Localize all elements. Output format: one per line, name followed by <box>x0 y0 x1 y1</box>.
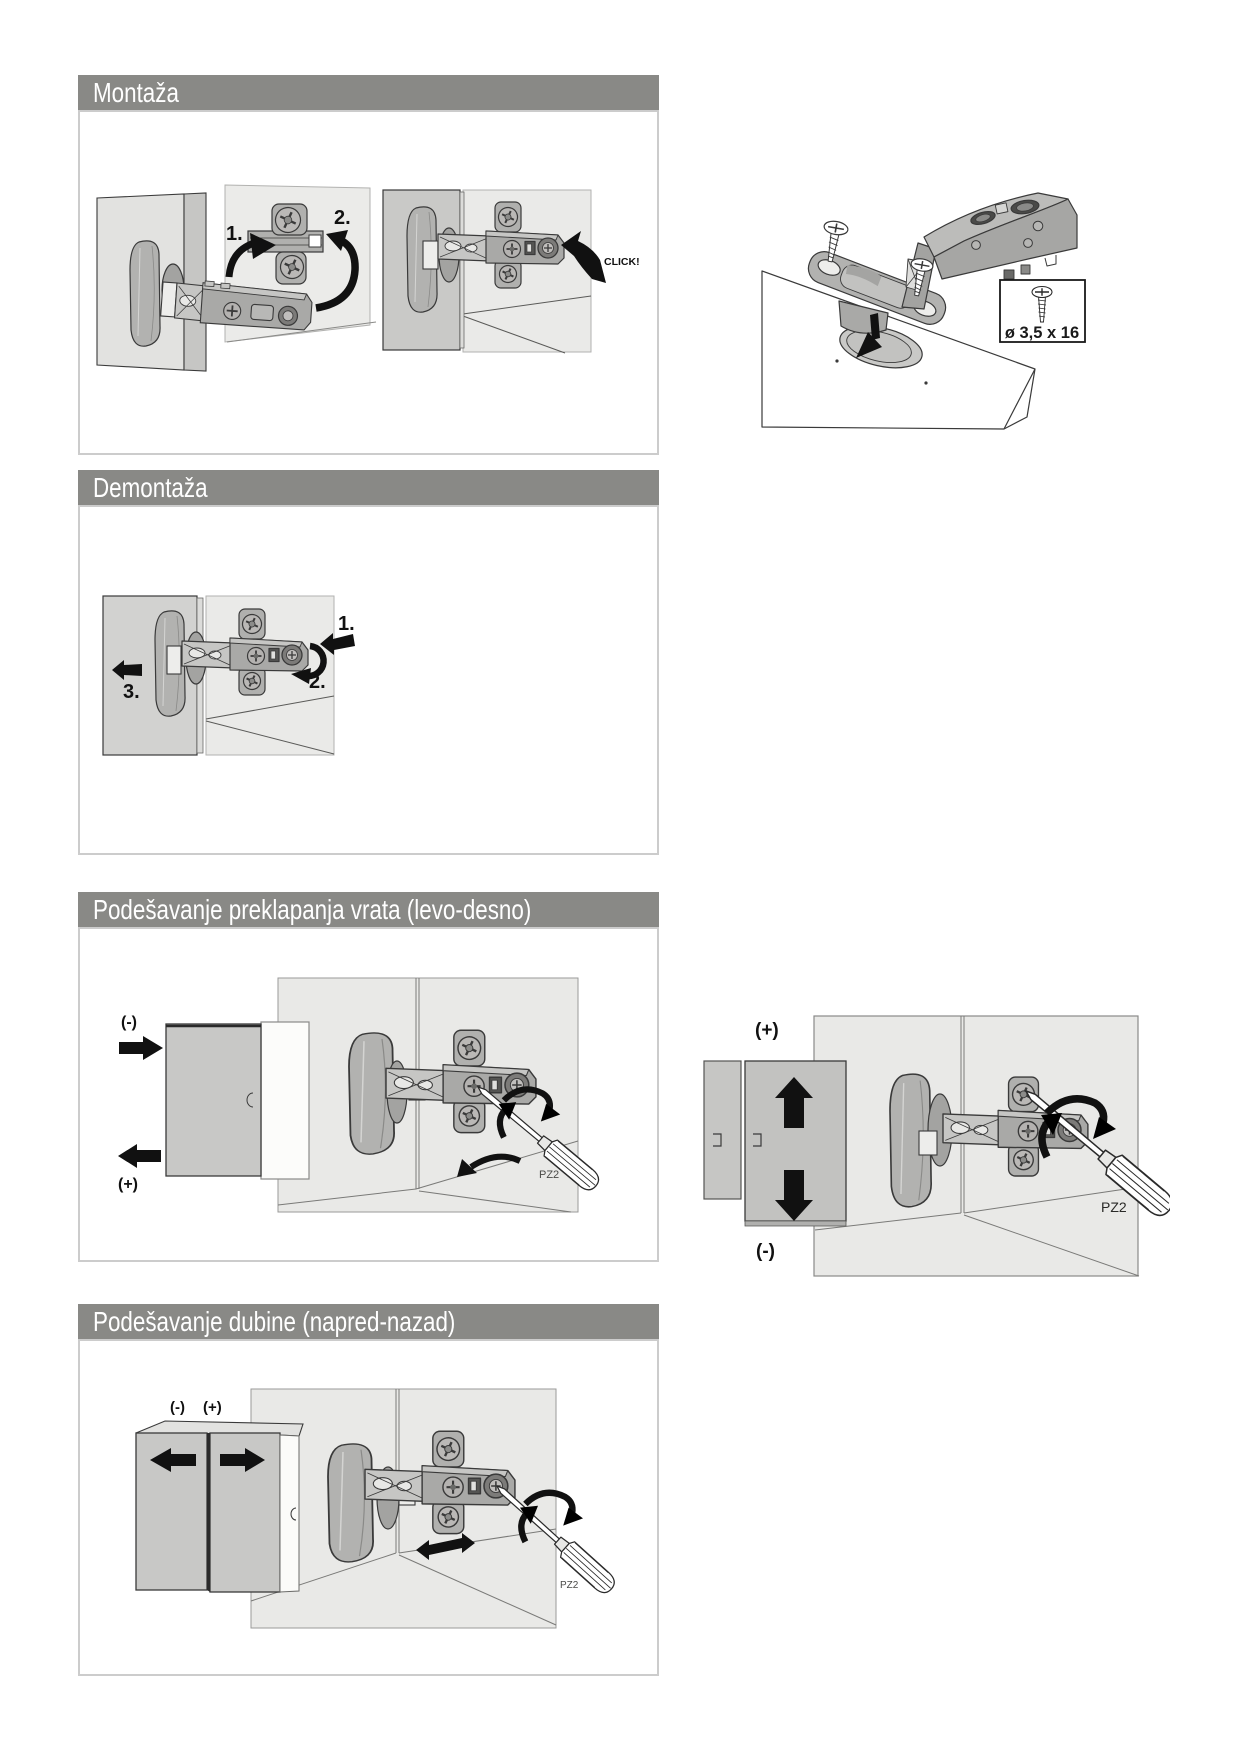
svg-text:1.: 1. <box>338 613 355 635</box>
svg-text:(-): (-) <box>756 1241 775 1262</box>
svg-text:(+): (+) <box>203 1399 222 1416</box>
svg-text:(+): (+) <box>118 1176 138 1193</box>
svg-text:(-): (-) <box>121 1014 137 1031</box>
svg-text:2.: 2. <box>334 207 351 229</box>
svg-text:PZ2: PZ2 <box>1101 1199 1127 1215</box>
svg-text:CLICK!: CLICK! <box>604 256 640 268</box>
svg-text:1.: 1. <box>226 223 243 245</box>
svg-text:3.: 3. <box>123 681 140 703</box>
svg-text:PZ2: PZ2 <box>560 1580 579 1591</box>
svg-text:ø 3,5 x 16: ø 3,5 x 16 <box>1005 324 1079 342</box>
svg-text:(-): (-) <box>170 1399 185 1416</box>
svg-text:(+): (+) <box>755 1020 779 1041</box>
svg-text:2.: 2. <box>309 671 326 693</box>
svg-text:PZ2: PZ2 <box>539 1169 559 1181</box>
